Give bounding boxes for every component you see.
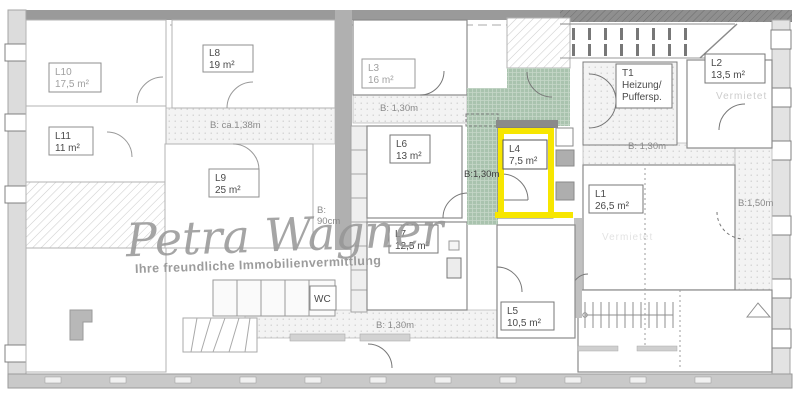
svg-text:26,5 m²: 26,5 m² [595,201,630,212]
room-label-t1: T1 Heizung/ Puffersp. [616,64,672,108]
svg-text:16 m²: 16 m² [368,75,394,86]
svg-text:L10: L10 [55,67,72,78]
dim-corridor-right-v: B:1,50m [738,198,773,209]
room-label-l2: L2 13,5 m² [705,54,765,83]
dim-corridor-right: B: 1,30m [628,141,666,152]
hatched-area-top [507,18,570,68]
svg-text:L8: L8 [209,48,221,59]
status-vermietet-l2: Vermietet [716,91,767,102]
svg-text:10,5 m²: 10,5 m² [507,318,542,329]
wall-segment [290,334,345,341]
stairs-winder [183,318,257,352]
svg-text:L1: L1 [595,189,607,200]
room-l11 [26,106,166,182]
svg-text:7,5 m²: 7,5 m² [509,156,538,167]
dim-corridor-bottom: B: 1,30m [376,320,414,331]
toilet-symbol [447,258,461,278]
svg-text:13,5 m²: 13,5 m² [711,70,746,81]
wall-segment [360,334,410,341]
room-label-l5: L5 10,5 m² [501,302,554,330]
room-l1 [583,165,735,290]
shaft-box [556,182,574,200]
room-label-l11: L11 11 m² [49,127,93,155]
room-label-l1: L1 26,5 m² [589,185,643,213]
status-vermietet-l1: Vermietet [602,232,653,243]
svg-text:L6: L6 [396,139,408,150]
svg-text:T1: T1 [622,68,634,79]
dim-corridor-mid: B: 1,30m [380,103,418,114]
svg-text:L9: L9 [215,173,227,184]
svg-text:17,5 m²: 17,5 m² [55,79,90,90]
dim-corridor-left: B: ca.1,38m [210,120,261,131]
svg-text:13 m²: 13 m² [396,151,422,162]
floor-plan-page: B: ca.1,38m B: 1,30m B:1,30m B: 1,30m B:… [0,0,800,400]
svg-text:19 m²: 19 m² [209,60,235,71]
room-label-l10: L10 17,5 m² [49,63,101,92]
sink-symbol [449,241,459,250]
door-arc-corridor [368,344,392,368]
svg-text:11 m²: 11 m² [55,143,80,154]
svg-text:L3: L3 [368,63,380,74]
svg-text:25 m²: 25 m² [215,185,241,196]
svg-text:Heizung/: Heizung/ [622,80,662,91]
wall-above-l4 [496,120,558,128]
svg-text:L4: L4 [509,144,521,155]
shaft-box [556,128,573,146]
svg-text:L2: L2 [711,58,723,69]
balcony-diagonal [700,24,737,58]
room-label-l8: L8 19 m² [203,45,253,72]
svg-text:Puffersp.: Puffersp. [622,92,662,103]
floor-plan: B: ca.1,38m B: 1,30m B:1,30m B: 1,30m B:… [0,0,800,400]
svg-text:L5: L5 [507,306,519,317]
room-bottom-right [578,290,772,372]
svg-text:WC: WC [314,294,331,305]
dim-corridor-green: B:1,30m [464,169,499,180]
shaft-box [556,150,574,166]
room-label-l6: L6 13 m² [390,135,430,163]
svg-text:L11: L11 [55,131,71,142]
room-label-l4: L4 7,5 m² [503,140,547,169]
room-label-wc: WC [310,286,336,310]
room-label-l3: L3 16 m² [362,59,415,88]
room-label-l9: L9 25 m² [209,169,259,197]
balcony [560,24,737,58]
